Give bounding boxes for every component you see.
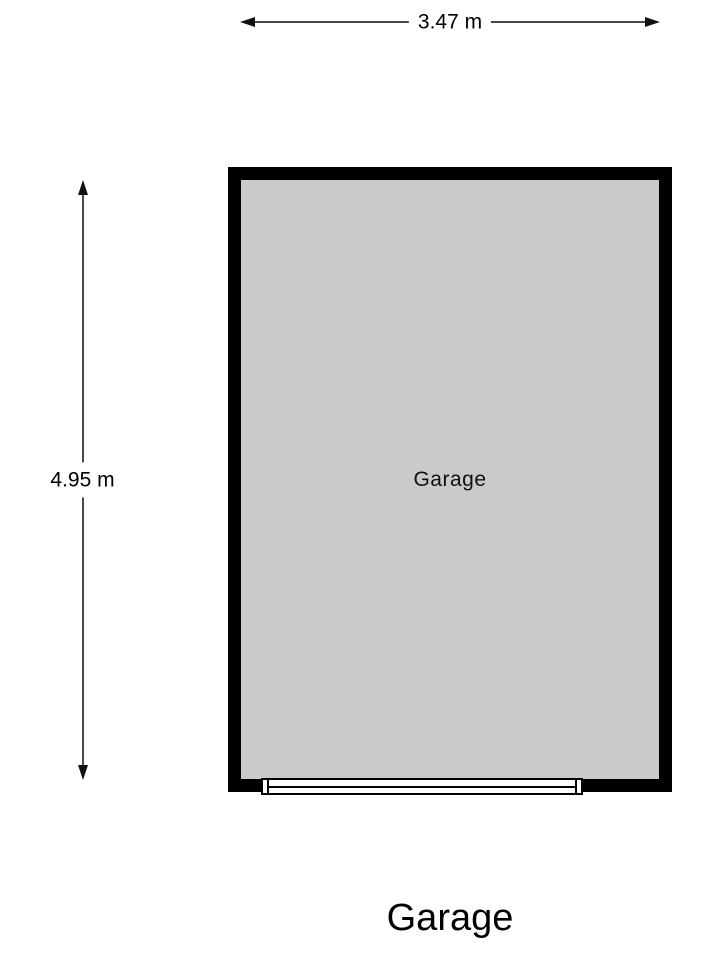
door-jamb-left [261,778,269,795]
floorplan-canvas: 3.47 m 4.95 m Garage Garage [0,0,720,960]
arrowhead-right-icon [645,17,660,27]
dimension-width: 3.47 m [240,11,660,32]
arrowhead-up-icon [78,180,88,195]
dimension-width-label: 3.47 m [409,7,491,36]
dimension-height-label: 4.95 m [42,462,122,497]
garage-door [261,778,583,795]
room-garage: Garage [228,167,672,792]
door-jamb-right [575,778,583,795]
arrowhead-down-icon [78,765,88,780]
room-label: Garage [413,468,486,492]
door-panel-divider [269,786,575,788]
arrowhead-left-icon [240,17,255,27]
door-panel [269,778,575,795]
floorplan-title: Garage [228,896,672,942]
dimension-height: 4.95 m [72,180,93,780]
